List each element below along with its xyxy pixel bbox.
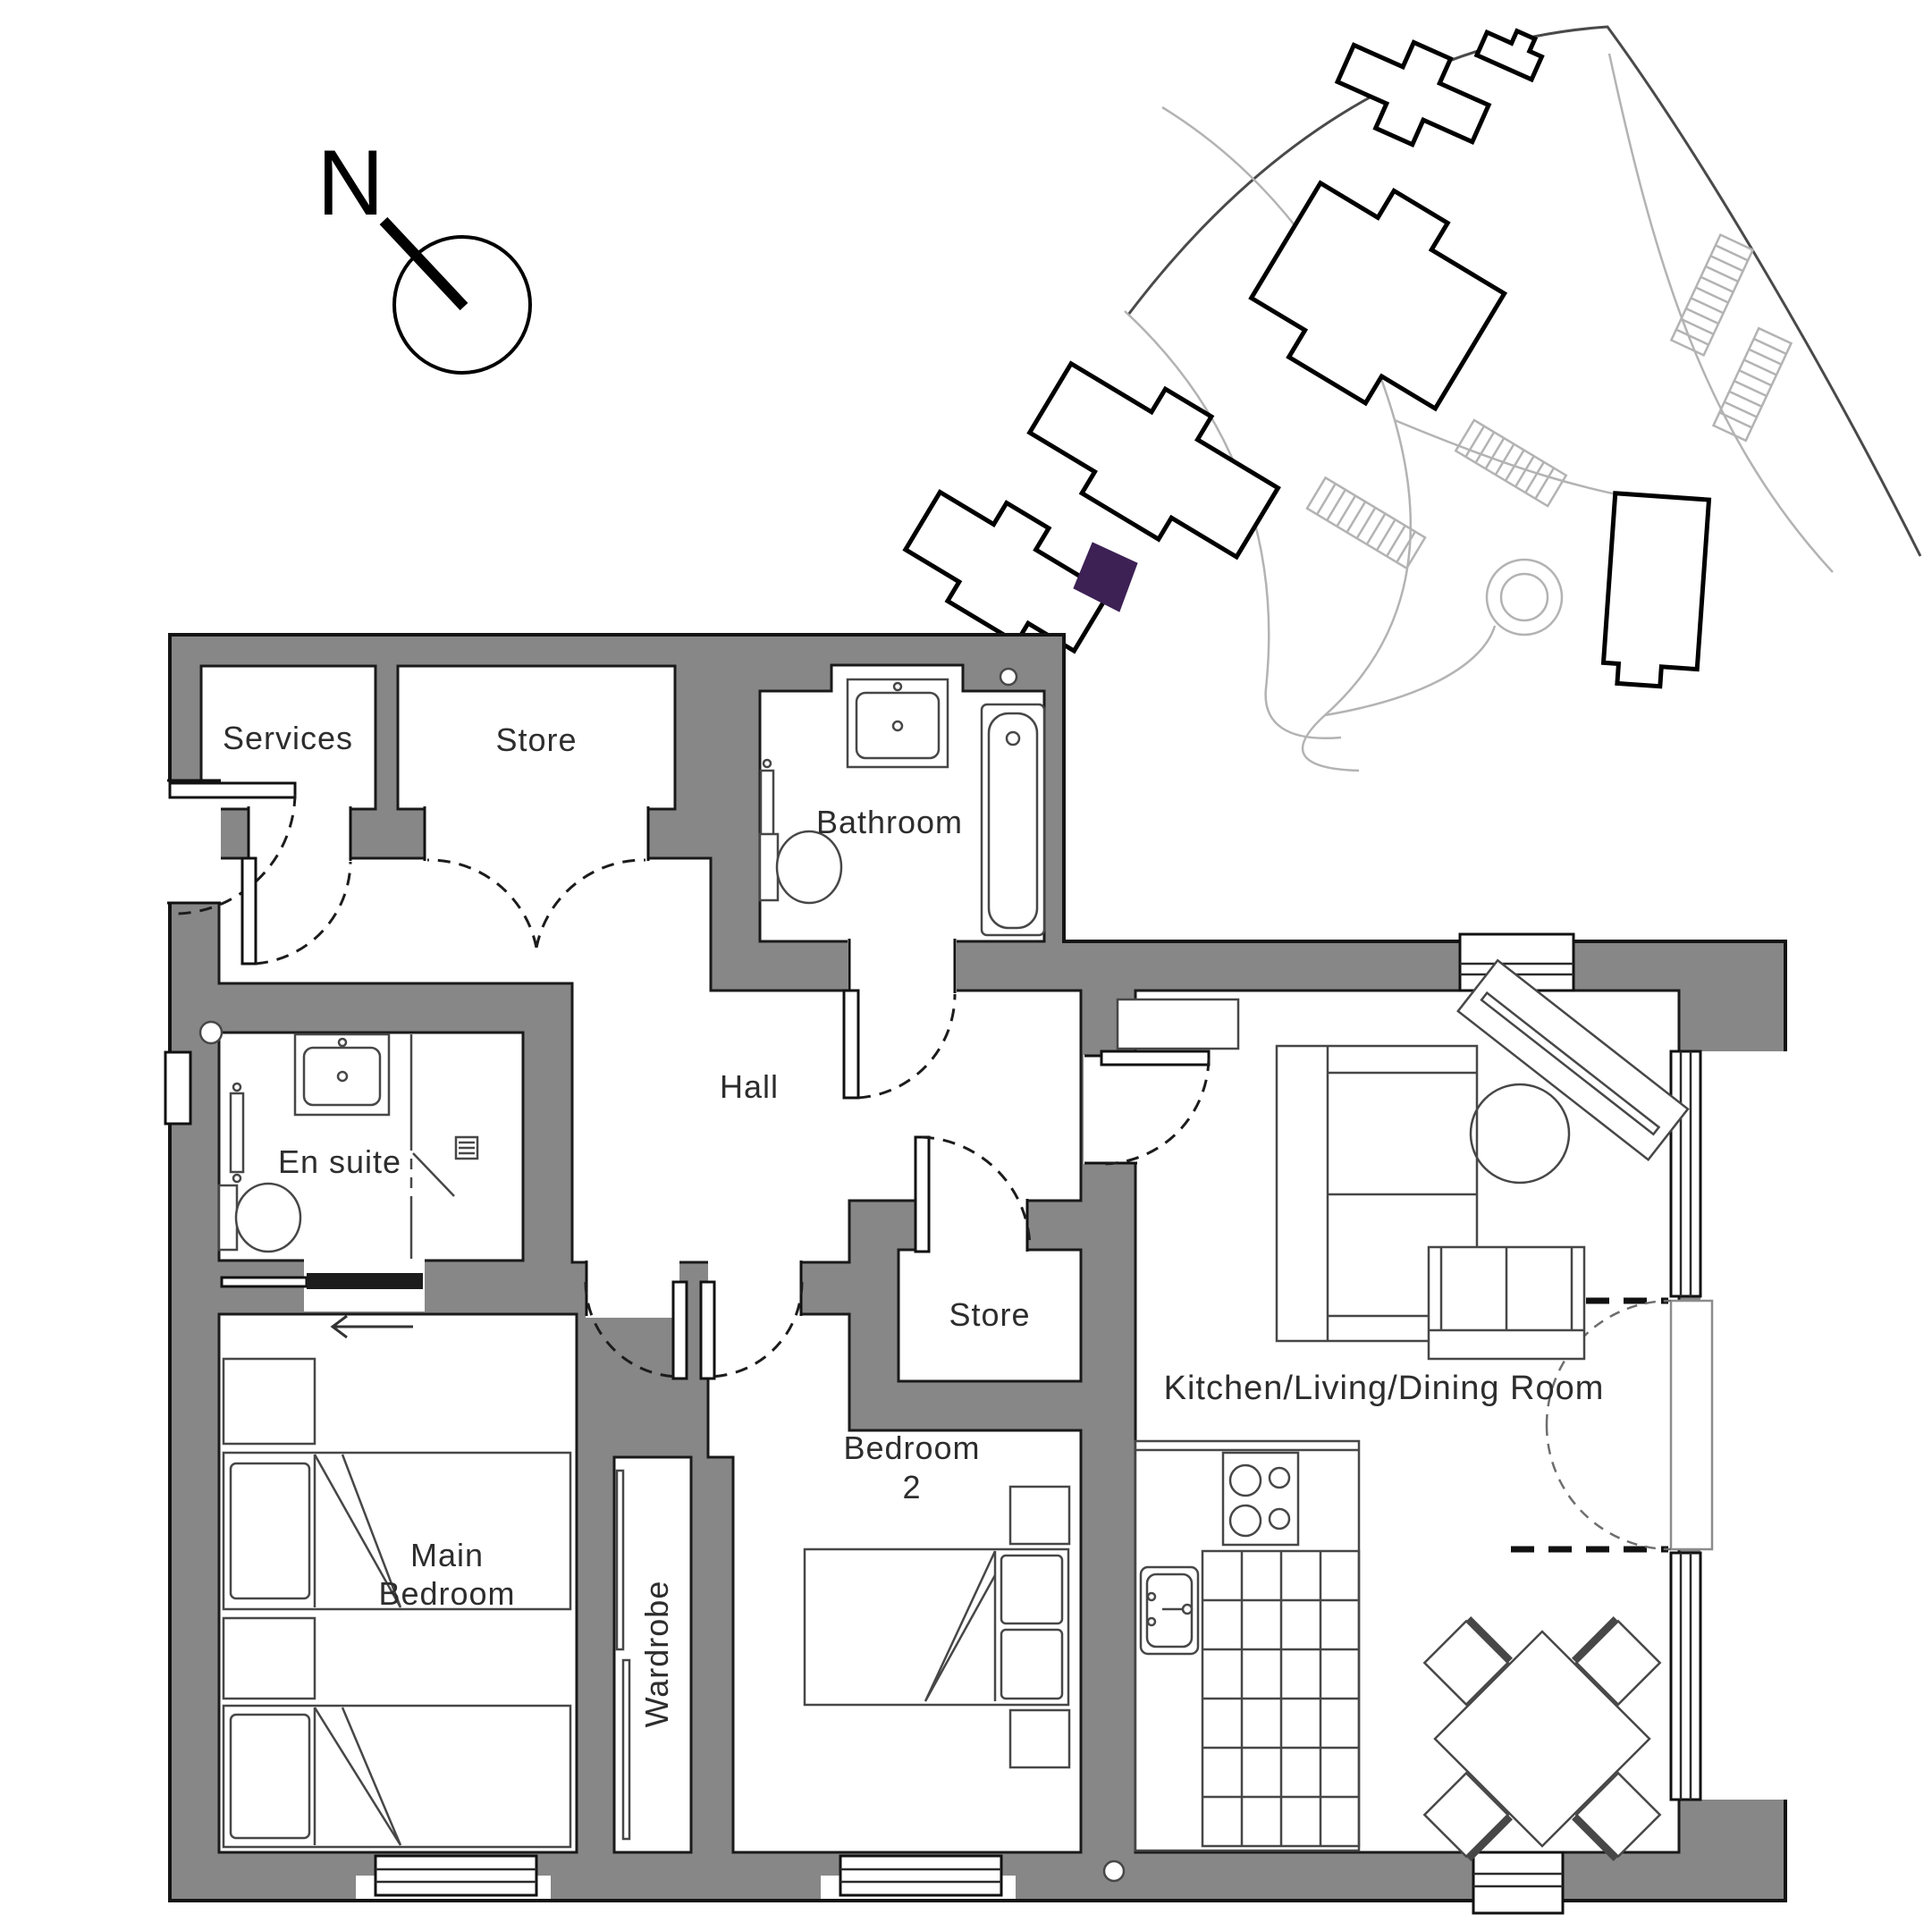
main-bedroom-label-1: Main bbox=[410, 1537, 484, 1573]
main-bedroom-label-2: Bedroom bbox=[378, 1575, 515, 1612]
store-top-label: Store bbox=[495, 721, 577, 758]
en-suite-label: En suite bbox=[278, 1143, 401, 1180]
bedroom2-label-1: Bedroom bbox=[843, 1429, 980, 1466]
entrance-door-leaf bbox=[170, 783, 295, 797]
sink-icon bbox=[1141, 1567, 1198, 1654]
bathroom-door-leaf bbox=[844, 991, 858, 1098]
wardrobe-door-icon bbox=[623, 1660, 629, 1839]
window-living-right-2 bbox=[1671, 1553, 1700, 1800]
patio-door bbox=[1671, 1301, 1712, 1549]
north-arrow-icon: N bbox=[316, 131, 530, 373]
hall-cupboard-icon bbox=[1118, 999, 1238, 1049]
window-kitchen bbox=[1473, 1852, 1563, 1913]
window-living-right-1 bbox=[1671, 1051, 1700, 1296]
sliding-door-leaf bbox=[307, 1273, 423, 1289]
site-building bbox=[1477, 20, 1548, 80]
wardrobe-door-icon bbox=[617, 1471, 623, 1649]
ensuite-toilet-icon bbox=[236, 1184, 300, 1252]
bedroom2-door-leaf bbox=[701, 1282, 714, 1379]
bedside-table-icon bbox=[1010, 1710, 1069, 1767]
site-roundabout-inner bbox=[1501, 574, 1548, 620]
kitchen-living-dining-label: Kitchen/Living/Dining Room bbox=[1164, 1370, 1605, 1407]
bedside-table-icon bbox=[224, 1618, 315, 1699]
site-building bbox=[1327, 21, 1499, 166]
wardrobe-label: Wardrobe bbox=[638, 1581, 675, 1728]
site-parking bbox=[1455, 420, 1565, 506]
detector-icon bbox=[1000, 669, 1017, 685]
loveseat-icon bbox=[1429, 1247, 1584, 1359]
detector-icon bbox=[1104, 1861, 1124, 1881]
dining-table-icon bbox=[1424, 1619, 1659, 1859]
site-parking bbox=[1671, 235, 1752, 356]
single-bed-icon bbox=[224, 1706, 570, 1847]
window-bedroom-2 bbox=[840, 1856, 1001, 1895]
toilet-icon bbox=[777, 831, 841, 903]
toilet-cistern-icon bbox=[760, 834, 778, 900]
ensuite-radiator-icon bbox=[231, 1093, 243, 1172]
site-parking bbox=[1307, 477, 1425, 568]
bedside-table-icon bbox=[1010, 1487, 1069, 1544]
kitchen-counter-icon bbox=[1135, 1441, 1359, 1851]
site-road bbox=[1325, 626, 1495, 715]
north-label: N bbox=[316, 131, 384, 235]
hall-store-door-leaf bbox=[915, 1137, 929, 1252]
sliding-door-track bbox=[222, 1277, 307, 1286]
vent-recess bbox=[165, 1052, 190, 1124]
ensuite-toilet-cistern-icon bbox=[219, 1185, 237, 1250]
floorplan-canvas: N bbox=[0, 0, 1932, 1931]
site-building bbox=[1602, 493, 1709, 689]
services-door-leaf bbox=[242, 858, 256, 964]
services-label: Services bbox=[223, 720, 353, 756]
hall-label: Hall bbox=[720, 1068, 779, 1105]
floorplan-page: N bbox=[0, 0, 1932, 1931]
site-building bbox=[1236, 156, 1521, 435]
store-hall-label: Store bbox=[949, 1296, 1030, 1333]
living-door-leaf bbox=[1101, 1051, 1209, 1065]
double-bed-icon bbox=[805, 1549, 1068, 1705]
exterior-cutout bbox=[1700, 1051, 1799, 1800]
bedside-table-icon bbox=[224, 1359, 315, 1444]
bathroom-label: Bathroom bbox=[816, 804, 963, 840]
site-building bbox=[1017, 341, 1292, 578]
bedroom2-label-2: 2 bbox=[902, 1469, 921, 1505]
window-main-bedroom bbox=[375, 1856, 536, 1895]
site-roundabout bbox=[1487, 560, 1562, 635]
site-parking bbox=[1714, 328, 1792, 441]
main-bedroom-door-leaf bbox=[673, 1282, 687, 1379]
detector-icon bbox=[200, 1022, 222, 1043]
